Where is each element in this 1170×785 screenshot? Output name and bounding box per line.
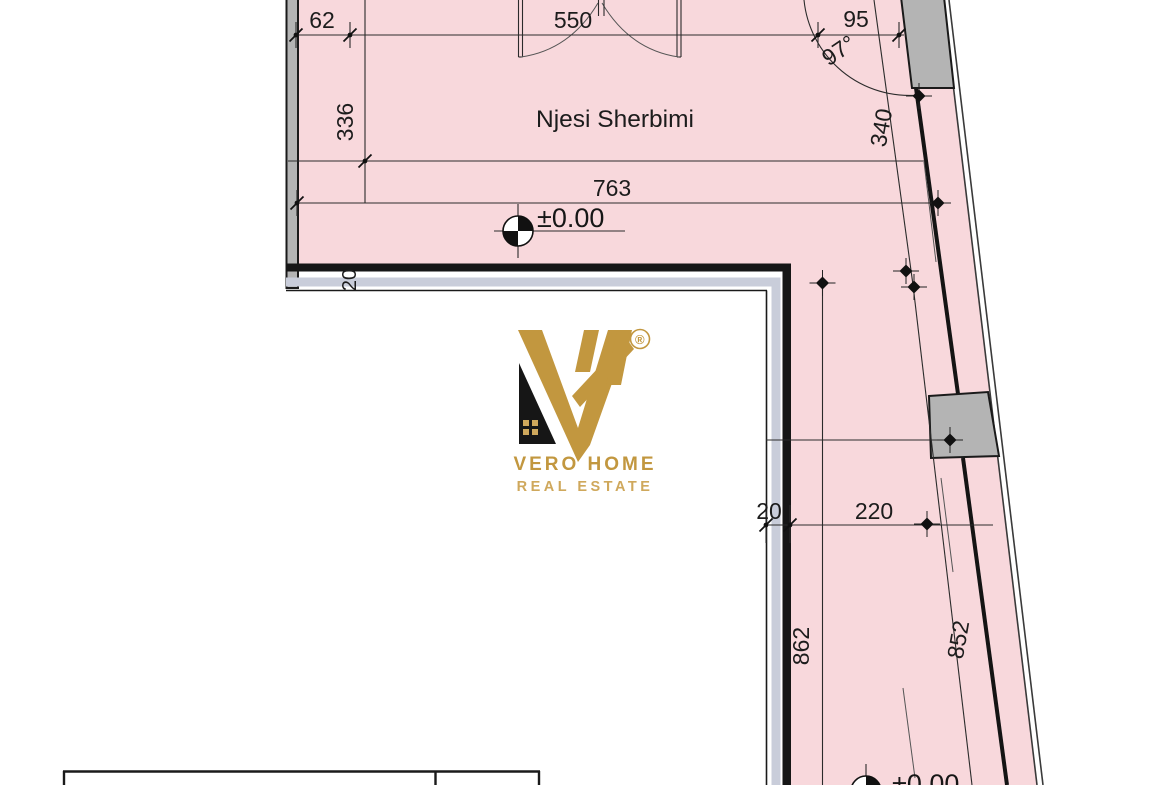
wall-bottom-upper-room [286, 264, 791, 291]
wall-corridor-left [767, 264, 792, 785]
dim-corridor-width: 220 [855, 498, 893, 524]
dim-top-right: 95 [843, 6, 869, 32]
dim-top-left: 62 [309, 7, 335, 33]
floorplan-canvas: 62 550 95 336 763 97° 340 20 20 220 862 … [0, 0, 1170, 785]
logo-registered: ® [635, 332, 645, 347]
vero-home-logo: ® VERO HOME REAL ESTATE [513, 330, 656, 496]
room-label: Njesi Sherbimi [536, 106, 694, 133]
level-marker-text: ±0.00 [537, 203, 604, 233]
dim-room-width: 763 [593, 175, 631, 201]
dim-wall-thickness-corridor: 20 [756, 498, 782, 524]
level-marker-bottom-text: ±0.00 [892, 769, 959, 785]
logo-name: VERO HOME [513, 454, 656, 475]
dim-wall-thickness-top: 20 [339, 269, 361, 291]
logo-h-left-leg [575, 330, 599, 372]
dim-left-height: 336 [332, 103, 358, 141]
dim-corridor-height-left: 862 [788, 627, 814, 665]
logo-tagline: REAL ESTATE [517, 479, 654, 495]
wall-pier-mid [929, 392, 999, 458]
floorplan-svg: 62 550 95 336 763 97° 340 20 20 220 862 … [0, 0, 1170, 785]
title-block-table [63, 771, 540, 785]
dim-top-door: 550 [554, 7, 592, 33]
